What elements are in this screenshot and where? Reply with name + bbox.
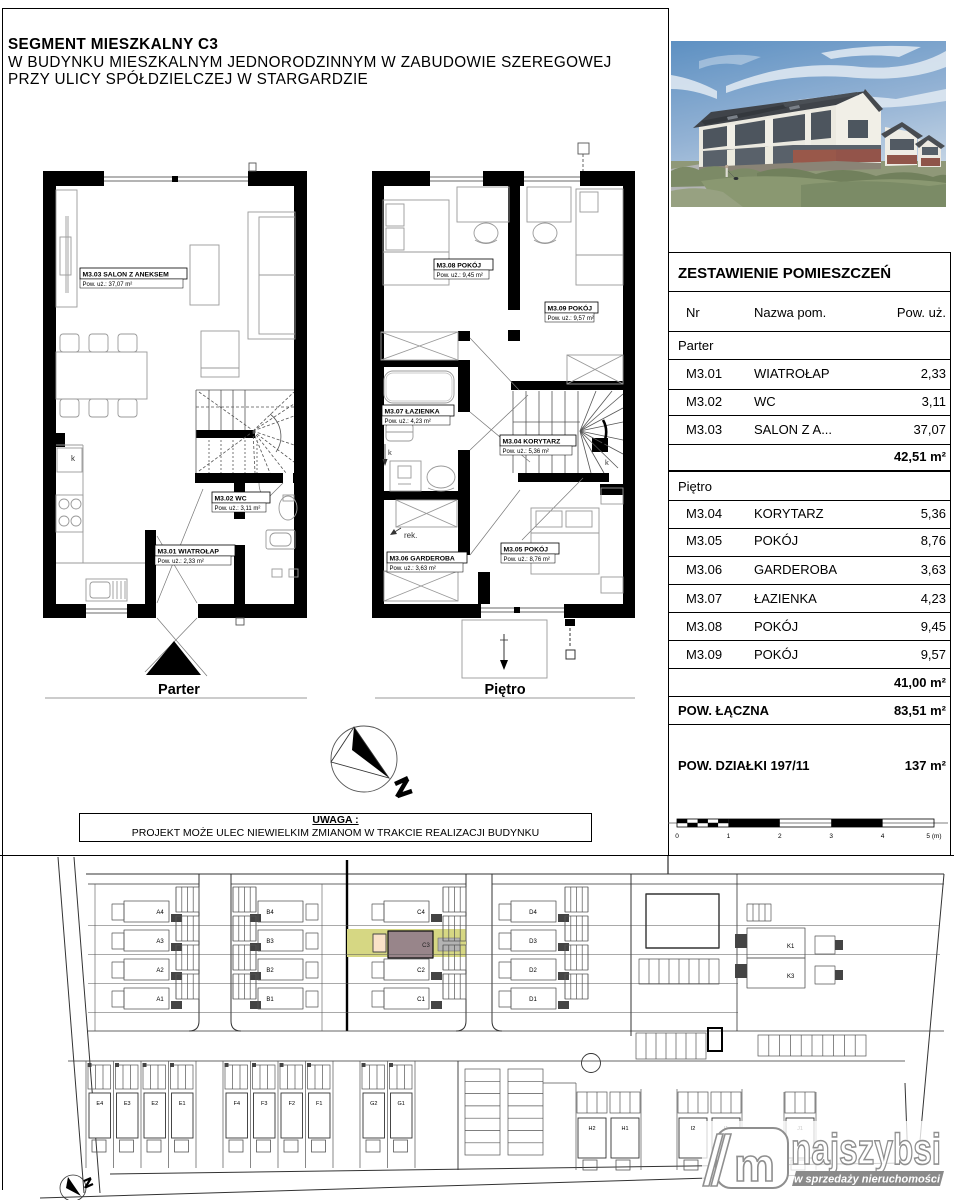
svg-text:F2: F2 [289, 1101, 295, 1107]
svg-text:w sprzedaży nieruchomości: w sprzedaży nieruchomości [794, 1174, 941, 1186]
svg-text:najszybsi: najszybsi [791, 1125, 941, 1174]
svg-text:E1: E1 [179, 1101, 186, 1107]
svg-text:F4: F4 [234, 1101, 240, 1107]
svg-text:M3.01 WIATROŁAP: M3.01 WIATROŁAP [158, 549, 220, 556]
svg-text:C2: C2 [417, 968, 425, 974]
svg-text:I2: I2 [691, 1126, 696, 1132]
svg-text:A1: A1 [156, 997, 164, 1003]
svg-text:C4: C4 [417, 910, 425, 916]
svg-text:F1: F1 [316, 1101, 322, 1107]
svg-text:M3.05 POKÓJ: M3.05 POKÓJ [504, 545, 549, 554]
svg-text:A3: A3 [156, 939, 164, 945]
svg-text:K1: K1 [787, 944, 795, 950]
svg-text:K3: K3 [787, 974, 795, 980]
svg-text:G2: G2 [370, 1101, 377, 1107]
svg-text:Parter: Parter [158, 682, 200, 698]
svg-text:M3.03 SALON Z ANEKSEM: M3.03 SALON Z ANEKSEM [83, 272, 170, 279]
svg-text:k: k [71, 454, 76, 463]
svg-text:E2: E2 [151, 1101, 158, 1107]
svg-text:B4: B4 [266, 910, 274, 916]
svg-text:A2: A2 [156, 968, 164, 974]
svg-text:k: k [605, 458, 609, 467]
svg-text:F3: F3 [261, 1101, 267, 1107]
svg-text:H1: H1 [621, 1126, 628, 1132]
svg-text:Pow. uż.: 3,63 m²: Pow. uż.: 3,63 m² [390, 566, 436, 572]
svg-text:G1: G1 [398, 1101, 405, 1107]
svg-text:M3.09 POKÓJ: M3.09 POKÓJ [548, 304, 593, 313]
svg-text:Pow. uż.: 5,36 m²: Pow. uż.: 5,36 m² [503, 449, 549, 455]
svg-text:M3.06 GARDEROBA: M3.06 GARDEROBA [390, 556, 455, 563]
svg-text:D1: D1 [529, 997, 537, 1003]
svg-text:m: m [734, 1139, 775, 1191]
svg-text:Pow. uż.: 9,45 m²: Pow. uż.: 9,45 m² [437, 273, 483, 279]
svg-text:M3.07 ŁAZIENKA: M3.07 ŁAZIENKA [385, 409, 440, 416]
svg-text:k: k [388, 448, 392, 457]
svg-text:Pow. uż.: 9,57 m²: Pow. uż.: 9,57 m² [548, 316, 594, 322]
svg-text:Piętro: Piętro [484, 682, 525, 698]
svg-text:E4: E4 [96, 1101, 103, 1107]
svg-text:D4: D4 [529, 910, 537, 916]
svg-text:M3.04 KORYTARZ: M3.04 KORYTARZ [503, 439, 561, 446]
svg-text:H2: H2 [588, 1126, 595, 1132]
svg-text:M3.08 POKÓJ: M3.08 POKÓJ [437, 261, 482, 270]
svg-text:C1: C1 [417, 997, 425, 1003]
svg-text:B3: B3 [266, 939, 274, 945]
svg-text:Pow. uż.: 37,07 m²: Pow. uż.: 37,07 m² [83, 282, 133, 288]
svg-text:Pow. uż.: 4,23 m²: Pow. uż.: 4,23 m² [385, 419, 431, 425]
svg-text:D3: D3 [529, 939, 537, 945]
svg-text:Pow. uż.: 2,33 m²: Pow. uż.: 2,33 m² [158, 559, 204, 565]
svg-text:C3: C3 [422, 943, 430, 949]
svg-text:E3: E3 [124, 1101, 131, 1107]
svg-text:D2: D2 [529, 968, 537, 974]
svg-text:A4: A4 [156, 910, 164, 916]
svg-text:rek.: rek. [404, 531, 417, 540]
svg-text:B1: B1 [266, 997, 274, 1003]
svg-text:Pow. uż.: 3,11 m²: Pow. uż.: 3,11 m² [215, 506, 261, 512]
svg-text:B2: B2 [266, 968, 274, 974]
svg-text:Pow. uż.: 8,76 m²: Pow. uż.: 8,76 m² [504, 557, 550, 563]
svg-text:M3.02 WC: M3.02 WC [215, 496, 247, 503]
